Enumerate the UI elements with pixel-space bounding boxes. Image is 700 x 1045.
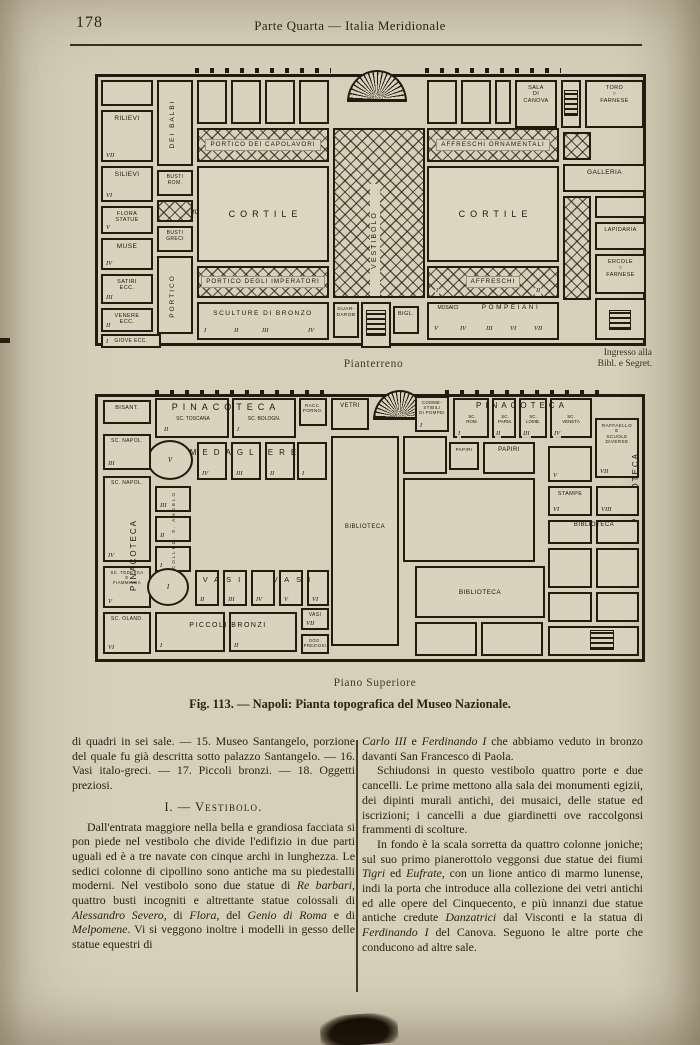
plan-label: SC. BOLOGN. bbox=[234, 417, 294, 423]
room-number: V bbox=[108, 598, 112, 605]
plan-room: OGG.PREZIOSI bbox=[301, 634, 329, 654]
room-number: I bbox=[160, 642, 162, 649]
plan-room bbox=[197, 80, 227, 124]
figure-caption: Fig. 113. — Napoli: Pianta topografica d… bbox=[40, 697, 660, 712]
plan-label: OGG.PREZIOSI bbox=[303, 636, 327, 649]
room-number: II bbox=[106, 322, 110, 329]
plan-label: GALLERIA bbox=[565, 166, 644, 176]
plan-label: SC. NAPOL. bbox=[105, 436, 149, 445]
plan-room: GALLERIA bbox=[563, 164, 646, 192]
plan-room: SATIRIECC.III bbox=[101, 274, 153, 304]
plan-room: BUSTIROM. bbox=[157, 170, 193, 196]
plan-hatch bbox=[563, 132, 591, 160]
plan-label: III bbox=[262, 327, 269, 334]
plan-label: PINACOTECA bbox=[455, 401, 589, 410]
plan-room: V bbox=[548, 446, 592, 482]
running-title: Parte Quarta — Italia Meridionale bbox=[0, 18, 700, 34]
plan-label: SC. OLAND. bbox=[105, 614, 149, 623]
plan-hatch: AFFRESCHI ORNAMENTALI bbox=[427, 128, 559, 162]
plan-vlabel: PINACOTECA bbox=[129, 460, 138, 650]
plan-room: GUAR-DAROB bbox=[333, 302, 359, 338]
plan-room bbox=[415, 622, 477, 656]
plan-room: PAPIRI bbox=[449, 442, 479, 470]
plan-num: I bbox=[457, 431, 461, 438]
room-number: I bbox=[106, 338, 108, 345]
room-number: VII bbox=[600, 468, 608, 475]
section-heading: I. — Vestibolo. bbox=[72, 800, 355, 815]
plan-room: BISANT. bbox=[103, 400, 151, 424]
plan-ticks bbox=[445, 390, 605, 395]
plan-room bbox=[427, 80, 457, 124]
plan-room bbox=[596, 592, 639, 622]
plan-room: FLORASTATUEV bbox=[101, 206, 153, 234]
plan-ticks bbox=[195, 68, 331, 73]
plan-room: BUSTIGRECI bbox=[157, 226, 193, 252]
plan-label: PORTICO DEGLI IMPERATORI bbox=[201, 276, 325, 287]
plan-label: MOSAICI bbox=[429, 306, 467, 312]
plan-room bbox=[595, 196, 646, 218]
plan-stair bbox=[564, 90, 578, 116]
plan-label: MOSAICI bbox=[429, 306, 467, 312]
plan-label: IV bbox=[460, 325, 466, 332]
plan-label: SC.ROM. bbox=[455, 414, 489, 424]
plan-room bbox=[548, 548, 592, 588]
plan-vlabel: COLLEZ. S. ANGELO bbox=[171, 488, 176, 572]
plan-room: VETRI bbox=[331, 398, 369, 430]
plan-label: AFFRESCHI ORNAMENTALI bbox=[436, 139, 549, 150]
plan-label: LAPIDARIA bbox=[597, 224, 644, 233]
plan-room: SC. TEDESCAEFIAMMINGAV bbox=[103, 566, 151, 608]
margin-mark bbox=[0, 338, 10, 343]
plan-label: SC.PARM. bbox=[493, 414, 517, 424]
room-number: IV bbox=[202, 470, 208, 477]
plan-label: PINACOTECA bbox=[455, 401, 589, 410]
ingresso-line1: Ingresso alla bbox=[604, 348, 652, 358]
plan-label: TORO○FARNESE bbox=[587, 82, 642, 104]
plan-label: SC. TOSCANA bbox=[161, 417, 225, 423]
plan-label: SC. BOLOGN. bbox=[234, 417, 294, 423]
plan-label: SC.ROM. bbox=[455, 414, 489, 424]
plan-label: POMPEIANI bbox=[469, 304, 553, 311]
plan-label: BUSTIGRECI bbox=[159, 228, 191, 243]
plan-label: BIBLIOTECA bbox=[550, 522, 638, 529]
plan-stair bbox=[609, 310, 631, 330]
plan-label: BIBLIOTECA bbox=[550, 522, 638, 529]
plan-num: II bbox=[535, 288, 541, 295]
plan-label: PINACOTECA bbox=[157, 402, 295, 412]
plan-room: LAPIDARIA bbox=[595, 222, 646, 250]
plan-room bbox=[548, 592, 592, 622]
ingresso-note: Ingresso alla Bibl. e Segret. bbox=[538, 348, 652, 370]
plan-room: GIOVE ECC.I bbox=[101, 334, 161, 348]
plan2-caption: Piano Superiore bbox=[95, 677, 655, 689]
plan-room bbox=[265, 80, 295, 124]
room-number: IV bbox=[108, 552, 114, 559]
plan-room: TORO○FARNESE bbox=[585, 80, 644, 128]
plan-vlabel: PORTICO bbox=[169, 266, 176, 326]
plan-stair bbox=[366, 310, 386, 336]
plan-label: PAPIRI bbox=[451, 444, 477, 452]
plan-label: MEDAGLIERE bbox=[167, 448, 325, 457]
plan-room: SC. NAPOL.III bbox=[103, 434, 151, 470]
plan-label: SC. TEDESCAEFIAMMINGA bbox=[105, 568, 149, 586]
plan-num: II bbox=[163, 427, 169, 434]
plan-label: BUSTIROM. bbox=[159, 172, 191, 187]
plan-label: VETRI bbox=[333, 400, 367, 410]
plan-stair bbox=[590, 630, 614, 650]
plan-room: II bbox=[229, 612, 297, 652]
plan-label: II bbox=[536, 287, 540, 294]
plan-label: RACC.PORNO. bbox=[301, 400, 325, 413]
plan-label: VASI bbox=[263, 576, 327, 585]
plan-num: IV bbox=[459, 326, 467, 333]
plan-label: SC.VENETA bbox=[551, 414, 591, 424]
plan-num: III bbox=[261, 328, 270, 335]
plan-room: RILIEVIVII bbox=[101, 110, 153, 162]
plan-hatch bbox=[563, 196, 591, 300]
plan-label: STAMPE bbox=[550, 488, 590, 497]
text-column-right: Carlo III e Ferdinando I che abbiamo ved… bbox=[362, 734, 643, 955]
plan-vlabel: VESTIBOLO bbox=[370, 184, 380, 296]
plan-label: SC.PARM. bbox=[493, 414, 517, 424]
room-number: IV bbox=[106, 260, 112, 267]
room-number: III bbox=[106, 294, 113, 301]
plan-label: CORTILE bbox=[454, 209, 533, 219]
room-number: IV bbox=[256, 596, 262, 603]
plan-label: POMPEIANI bbox=[469, 304, 553, 311]
plan-ticks bbox=[155, 390, 335, 395]
plan-label: SALADICANOVA bbox=[517, 82, 555, 104]
plan-num: III bbox=[485, 326, 494, 333]
plan-court: CORTILE bbox=[427, 166, 559, 262]
plan-label: BIBLIOTECA bbox=[333, 524, 397, 531]
plan-label: CORTILE bbox=[224, 209, 303, 219]
room-number: VII bbox=[306, 620, 314, 627]
plan-label: PICCOLI BRONZI bbox=[159, 622, 297, 630]
plan-room: SC. NAPOL.IV bbox=[103, 476, 151, 562]
room-number: II bbox=[270, 470, 274, 477]
ingresso-line2: Bibl. e Segret. bbox=[598, 359, 652, 369]
plan-court: CORTILE bbox=[197, 166, 329, 262]
plan-label: VESTIBOLO bbox=[371, 184, 379, 296]
plan-label: SC. TOSCANA bbox=[161, 417, 225, 423]
plan-room: VENEREECC.II bbox=[101, 308, 153, 332]
plan-room: ERCOLE○FARNESE bbox=[595, 254, 646, 294]
plan-room: VASIVII bbox=[301, 608, 329, 630]
plan-label: MUSE bbox=[103, 240, 151, 250]
plan-label: VII bbox=[534, 325, 542, 332]
plan-label: BIBLIOTECA bbox=[417, 568, 543, 615]
body-paragraph: In fondo è la scala sorretta da quattro … bbox=[362, 837, 643, 955]
plan-room bbox=[403, 436, 447, 474]
header-rule bbox=[70, 44, 642, 46]
plan-label: SILIEVI bbox=[103, 168, 151, 178]
plan-num: II bbox=[495, 431, 501, 438]
room-number: VI bbox=[106, 192, 112, 199]
plan-label: VASI bbox=[303, 610, 327, 619]
plan-label: IV bbox=[308, 327, 314, 334]
plan-num: III bbox=[522, 431, 531, 438]
plan-circle: I bbox=[147, 568, 189, 606]
plan-hatch: PORTICO DEGLI IMPERATORI bbox=[197, 266, 329, 298]
plan-num: II bbox=[233, 328, 239, 335]
plan-num: VI bbox=[509, 326, 517, 333]
room-number: V bbox=[106, 224, 110, 231]
plan-label: VASI bbox=[195, 576, 255, 585]
plan-label: I bbox=[237, 426, 239, 433]
plan-room bbox=[403, 478, 535, 562]
plan-label: GUAR-DAROB bbox=[335, 304, 357, 318]
plan-room: PAPIRI bbox=[483, 442, 535, 474]
plan-room: SILIEVIVI bbox=[101, 166, 153, 202]
plan-vlabel: DEI BALBI bbox=[169, 88, 176, 160]
plan-num: VII bbox=[533, 326, 543, 333]
plan-label: SCULTURE DI BRONZO bbox=[203, 310, 323, 317]
plan-num: V bbox=[433, 326, 439, 333]
plan-label: VASI bbox=[195, 576, 255, 585]
plan-label: PORTICO DEI CAPOLAVORI bbox=[205, 139, 320, 150]
room-number: VI bbox=[553, 506, 559, 513]
plan-label: I bbox=[204, 327, 206, 334]
plan-room: COMME-STIBILIDI POMPEII bbox=[415, 396, 449, 432]
plan-hatch bbox=[157, 200, 193, 222]
plan-room: MUSEIV bbox=[101, 238, 153, 270]
room-number: I bbox=[420, 422, 422, 429]
plan-label: PINACOTECA bbox=[157, 402, 295, 412]
room-number: V bbox=[284, 596, 288, 603]
plan-room bbox=[231, 80, 261, 124]
plan-label: BISANT. bbox=[105, 402, 149, 411]
room-number: III bbox=[160, 502, 167, 509]
plan-circle: V bbox=[147, 440, 193, 480]
plan-num: IV bbox=[553, 431, 561, 438]
plan-label: SC.LOMB. bbox=[519, 414, 547, 424]
plan-ticks bbox=[425, 68, 561, 73]
plan-label: V bbox=[434, 325, 438, 332]
plan-room bbox=[331, 436, 399, 646]
plan-room: SC. OLAND.VI bbox=[103, 612, 151, 654]
plan-room bbox=[495, 80, 511, 124]
room-number: III bbox=[228, 596, 235, 603]
plan-label: III bbox=[486, 325, 493, 332]
column-divider bbox=[356, 740, 358, 992]
plan-label: II bbox=[164, 426, 168, 433]
plan-room: VIII bbox=[596, 486, 639, 516]
plan-room: BIGL. bbox=[393, 306, 419, 334]
plan-label: I bbox=[436, 287, 438, 294]
plan-label: PICCOLI BRONZI bbox=[159, 622, 297, 630]
plan-label: COLLEZ. S. ANGELO bbox=[171, 488, 176, 572]
plan-label: VI bbox=[510, 325, 516, 332]
plan-label: VASI bbox=[263, 576, 327, 585]
plan-label: SCULTURE DI BRONZO bbox=[203, 310, 323, 317]
plan-num: I bbox=[435, 288, 439, 295]
plan-label: DEI BALBI bbox=[169, 88, 176, 160]
room-number: VI bbox=[312, 596, 318, 603]
floor-plan-upper: BISANT.PINACOTECASC. TOSCANAIISC. BOLOGN… bbox=[95, 390, 655, 672]
plan-label: GIOVE ECC. bbox=[103, 336, 159, 345]
body-paragraph: Carlo III e Ferdinando I che abbiamo ved… bbox=[362, 734, 643, 763]
floor-plan-ground: RILIEVIVIISILIEVIVIFLORASTATUEVDI MARMOM… bbox=[95, 66, 652, 358]
room-number: V bbox=[553, 472, 557, 479]
text-column-left: di quadri in sei sale. — 15. Museo Santa… bbox=[72, 734, 355, 952]
plan-hatch: PORTICO DEI CAPOLAVORI bbox=[197, 128, 329, 162]
room-number: II bbox=[200, 596, 204, 603]
plan-label: PINACOTECA bbox=[129, 460, 138, 650]
plan-room bbox=[299, 80, 329, 124]
room-number: VIII bbox=[601, 506, 611, 513]
plan-num: I bbox=[203, 328, 207, 335]
plan-label: IV bbox=[554, 430, 560, 437]
plan-label: BIGL. bbox=[395, 308, 417, 317]
plan-room: BIBLIOTECA bbox=[415, 566, 545, 618]
ink-smudge bbox=[319, 1011, 399, 1045]
plan-label: SC.LOMB. bbox=[519, 414, 547, 424]
room-number: I bbox=[167, 583, 169, 591]
room-number: III bbox=[236, 470, 243, 477]
body-paragraph: Dall'entrata maggiore nella bella e gran… bbox=[72, 820, 355, 952]
plan-label: FLORASTATUE bbox=[103, 208, 151, 224]
plan-room bbox=[596, 548, 639, 588]
plan-num: I bbox=[236, 427, 240, 434]
room-number: II bbox=[234, 642, 238, 649]
room-number: VII bbox=[106, 152, 114, 159]
room-number: VI bbox=[108, 644, 114, 651]
plan-label: PORTICO bbox=[169, 266, 176, 326]
plan-room: SALADICANOVA bbox=[515, 80, 557, 128]
plan-num: IV bbox=[307, 328, 315, 335]
plan-label: II bbox=[234, 327, 238, 334]
room-number: I bbox=[302, 470, 304, 477]
plan-label: BIBLIOTECA bbox=[333, 524, 397, 531]
plan-label: SC. NAPOL. bbox=[105, 478, 149, 487]
body-paragraph: Schiudonsi in questo vestibolo quattro p… bbox=[362, 763, 643, 837]
plan-label: SC.VENETA bbox=[551, 414, 591, 424]
plan-room bbox=[101, 80, 153, 106]
room-number: II bbox=[160, 532, 164, 539]
plan-label: II bbox=[496, 430, 500, 437]
plan-room: RACC.PORNO. bbox=[299, 398, 327, 426]
plan-label: MEDAGLIERE bbox=[167, 448, 325, 457]
plan-label: I bbox=[458, 430, 460, 437]
plan-label: COMME-STIBILIDI POMPEI bbox=[417, 398, 447, 416]
plan-label: AFFRESCHI bbox=[466, 276, 521, 287]
plan-label: III bbox=[523, 430, 530, 437]
plan-label: PAPIRI bbox=[485, 444, 533, 454]
plan-label: RILIEVI bbox=[103, 112, 151, 122]
plan-label: SATIRIECC. bbox=[103, 276, 151, 292]
body-paragraph: di quadri in sei sale. — 15. Museo Santa… bbox=[72, 734, 355, 793]
plan-room: I bbox=[155, 612, 225, 652]
plan-room bbox=[481, 622, 543, 656]
plan-room: STAMPEVI bbox=[548, 486, 592, 516]
plan-label: ERCOLE○FARNESE bbox=[597, 256, 644, 278]
book-page: 178 Parte Quarta — Italia Meridionale RI… bbox=[0, 0, 700, 1045]
plan-room bbox=[461, 80, 491, 124]
room-number: III bbox=[108, 460, 115, 467]
